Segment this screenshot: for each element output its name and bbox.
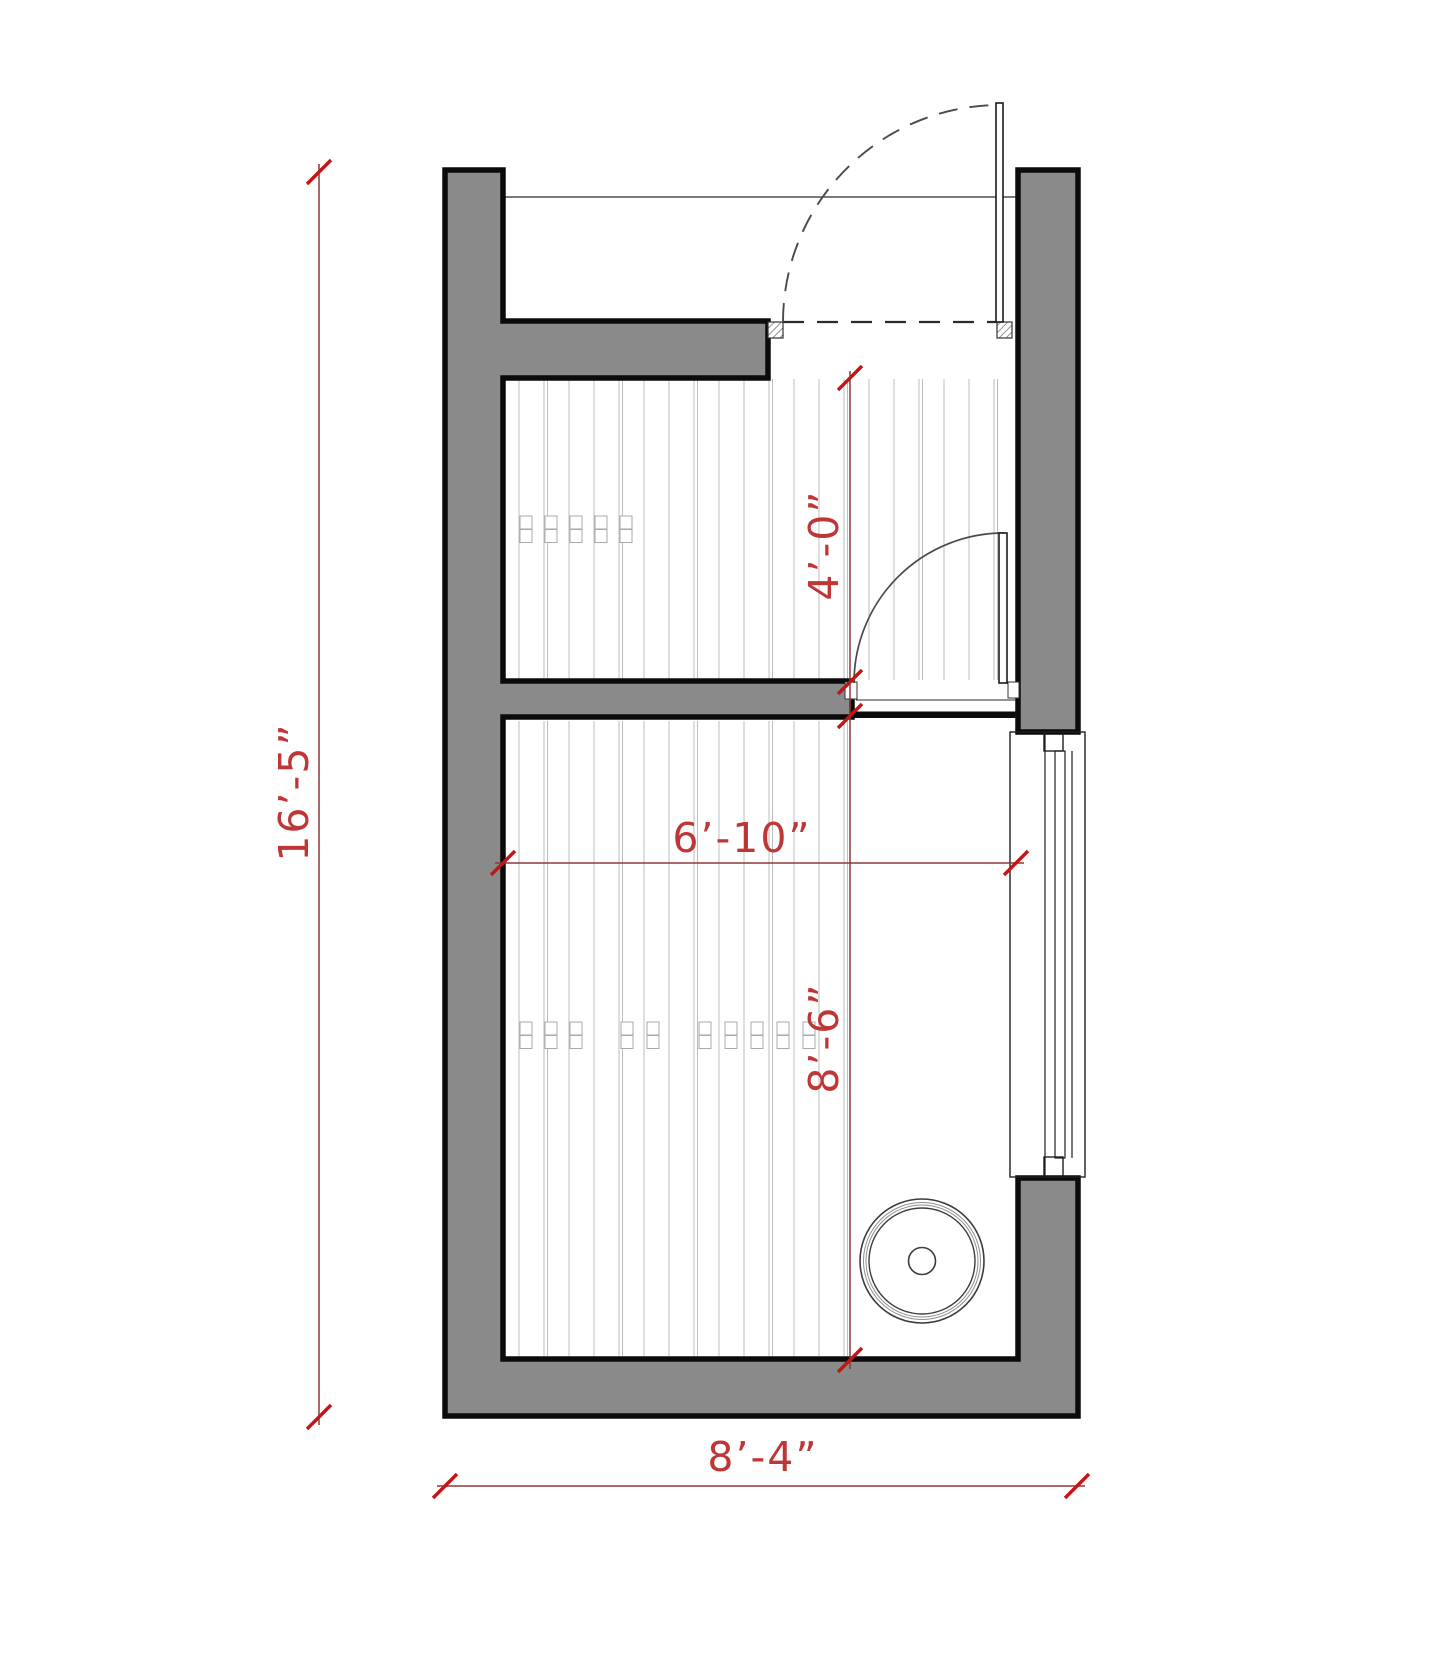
interior-door-swing-arc [854,533,1004,683]
entry-door-swing-arc [783,105,1000,322]
plank-joint [699,1036,711,1049]
plank-joint [621,1022,633,1035]
main-walls [445,170,1078,1416]
plank-joint [520,1022,532,1035]
entry-door-leaf [996,103,1003,322]
plank-joint [725,1022,737,1035]
heater-inner-circle [869,1208,975,1314]
plank-joint [751,1022,763,1035]
plank-joint [520,530,532,543]
plank-joint [699,1022,711,1035]
floor-plan-canvas: 16’-5” 8’-4” 6’-10” 4’-0” 8’-6” [0,0,1445,1658]
interior-door-threshold-wall-line [852,712,1018,719]
dimension-label-upper-room-depth: 4’-0” [800,489,848,600]
heater-center-knob [909,1248,936,1275]
interior-door-right-jamb [1008,682,1019,698]
dimension-label-interior-width: 6’-10” [672,814,811,862]
plank-joint [570,530,582,543]
heater-ring [864,1203,981,1320]
entry-door [768,103,1012,338]
entry-left-jamb [768,322,783,338]
upper-right-wall [1018,170,1078,732]
window [1010,732,1085,1177]
heater [860,1199,984,1323]
plank-joint-marks [520,516,815,1049]
dimension-label-overall-width: 8’-4” [707,1433,818,1481]
window-bottom-sash-block [1044,1157,1063,1177]
window-top-sash-block [1044,732,1063,751]
plank-joint [570,1022,582,1035]
dimension-room-depths: 4’-0” 8’-6” [800,366,862,1372]
plank-joint [520,516,532,529]
plank-joint [725,1036,737,1049]
dimension-overall-height: 16’-5” [270,160,331,1429]
plank-joint [520,1036,532,1049]
plank-joint [751,1036,763,1049]
floor-plan-drawing: 16’-5” 8’-4” 6’-10” 4’-0” 8’-6” [0,0,1445,1658]
heater-ring [866,1205,978,1317]
plank-joint [777,1022,789,1035]
window-glazing [1055,751,1065,1158]
entry-right-jamb [997,322,1012,338]
interior-door-leaf [999,533,1007,683]
plank-joint [545,1036,557,1049]
dimension-label-lower-room-depth: 8’-6” [800,982,848,1093]
dimension-interior-width: 6’-10” [491,814,1028,875]
dimension-label-overall-height: 16’-5” [270,722,318,861]
plank-joint [570,1036,582,1049]
plank-joint [647,1036,659,1049]
plank-joint [545,530,557,543]
dimension-overall-width: 8’-4” [433,1433,1089,1498]
plank-joint [620,516,632,529]
floor-hatch-upper-room [519,379,998,680]
plank-joint [545,516,557,529]
plank-joint [777,1036,789,1049]
plank-joint [545,1022,557,1035]
plank-joint [647,1022,659,1035]
window-outer-frame [1010,732,1085,1177]
plank-joint [621,1036,633,1049]
plank-joint [595,530,607,543]
heater-outer-circle [860,1199,984,1323]
plank-joint [620,530,632,543]
interior-door [845,533,1019,718]
plank-joint [570,516,582,529]
plank-joint [595,516,607,529]
